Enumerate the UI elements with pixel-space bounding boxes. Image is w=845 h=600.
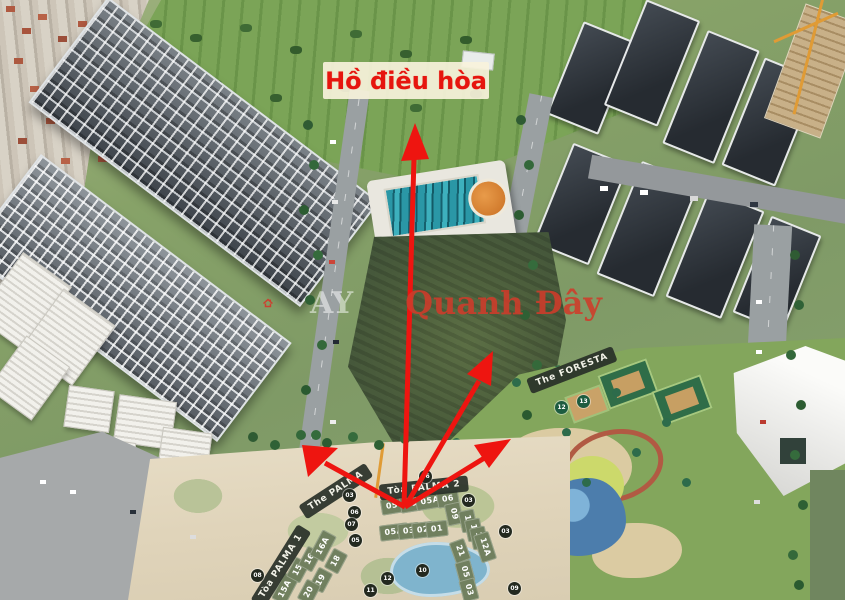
watermark-brand-text: Quanh Đây [405, 284, 602, 322]
cars [330, 140, 336, 144]
tree-cluster [150, 20, 162, 28]
map-marker: 03 [462, 494, 475, 507]
cars [40, 480, 46, 484]
map-marker: 03 [343, 489, 356, 502]
map-marker: 06 [419, 470, 432, 483]
park-marker: 13 [577, 395, 590, 408]
river [810, 470, 845, 600]
cars [756, 300, 762, 304]
sports-court [651, 374, 712, 426]
tree-cluster [303, 120, 313, 130]
lake-label: Hồ điều hòa [323, 62, 489, 99]
map-marker: 09 [508, 582, 521, 595]
tree-cluster [790, 250, 800, 260]
map-marker: 05 [349, 534, 362, 547]
cars [600, 186, 608, 191]
map-marker: 08 [251, 569, 264, 582]
watermark-faint-text: AY [310, 286, 353, 321]
map-marker: 12 [381, 572, 394, 585]
red-roof-cluster [6, 6, 15, 12]
watermark: AY Quanh Đây [262, 278, 602, 328]
map-marker: 03 [499, 525, 512, 538]
tower-block-label: 01 [425, 520, 449, 539]
park-marker: 12 [555, 401, 568, 414]
tree-cluster [248, 432, 258, 442]
aerial-photo: Hồ điều hòa AY Quanh Đây The PALMA Tòa P… [0, 0, 845, 600]
white-building [63, 385, 114, 433]
courtyard-opening [780, 438, 806, 464]
house-icon [262, 288, 274, 318]
map-marker: 11 [364, 584, 377, 597]
lake-label-text: Hồ điều hòa [325, 67, 487, 95]
map-marker: 10 [416, 564, 429, 577]
map-marker: 07 [345, 518, 358, 531]
tree-cluster [516, 115, 526, 125]
